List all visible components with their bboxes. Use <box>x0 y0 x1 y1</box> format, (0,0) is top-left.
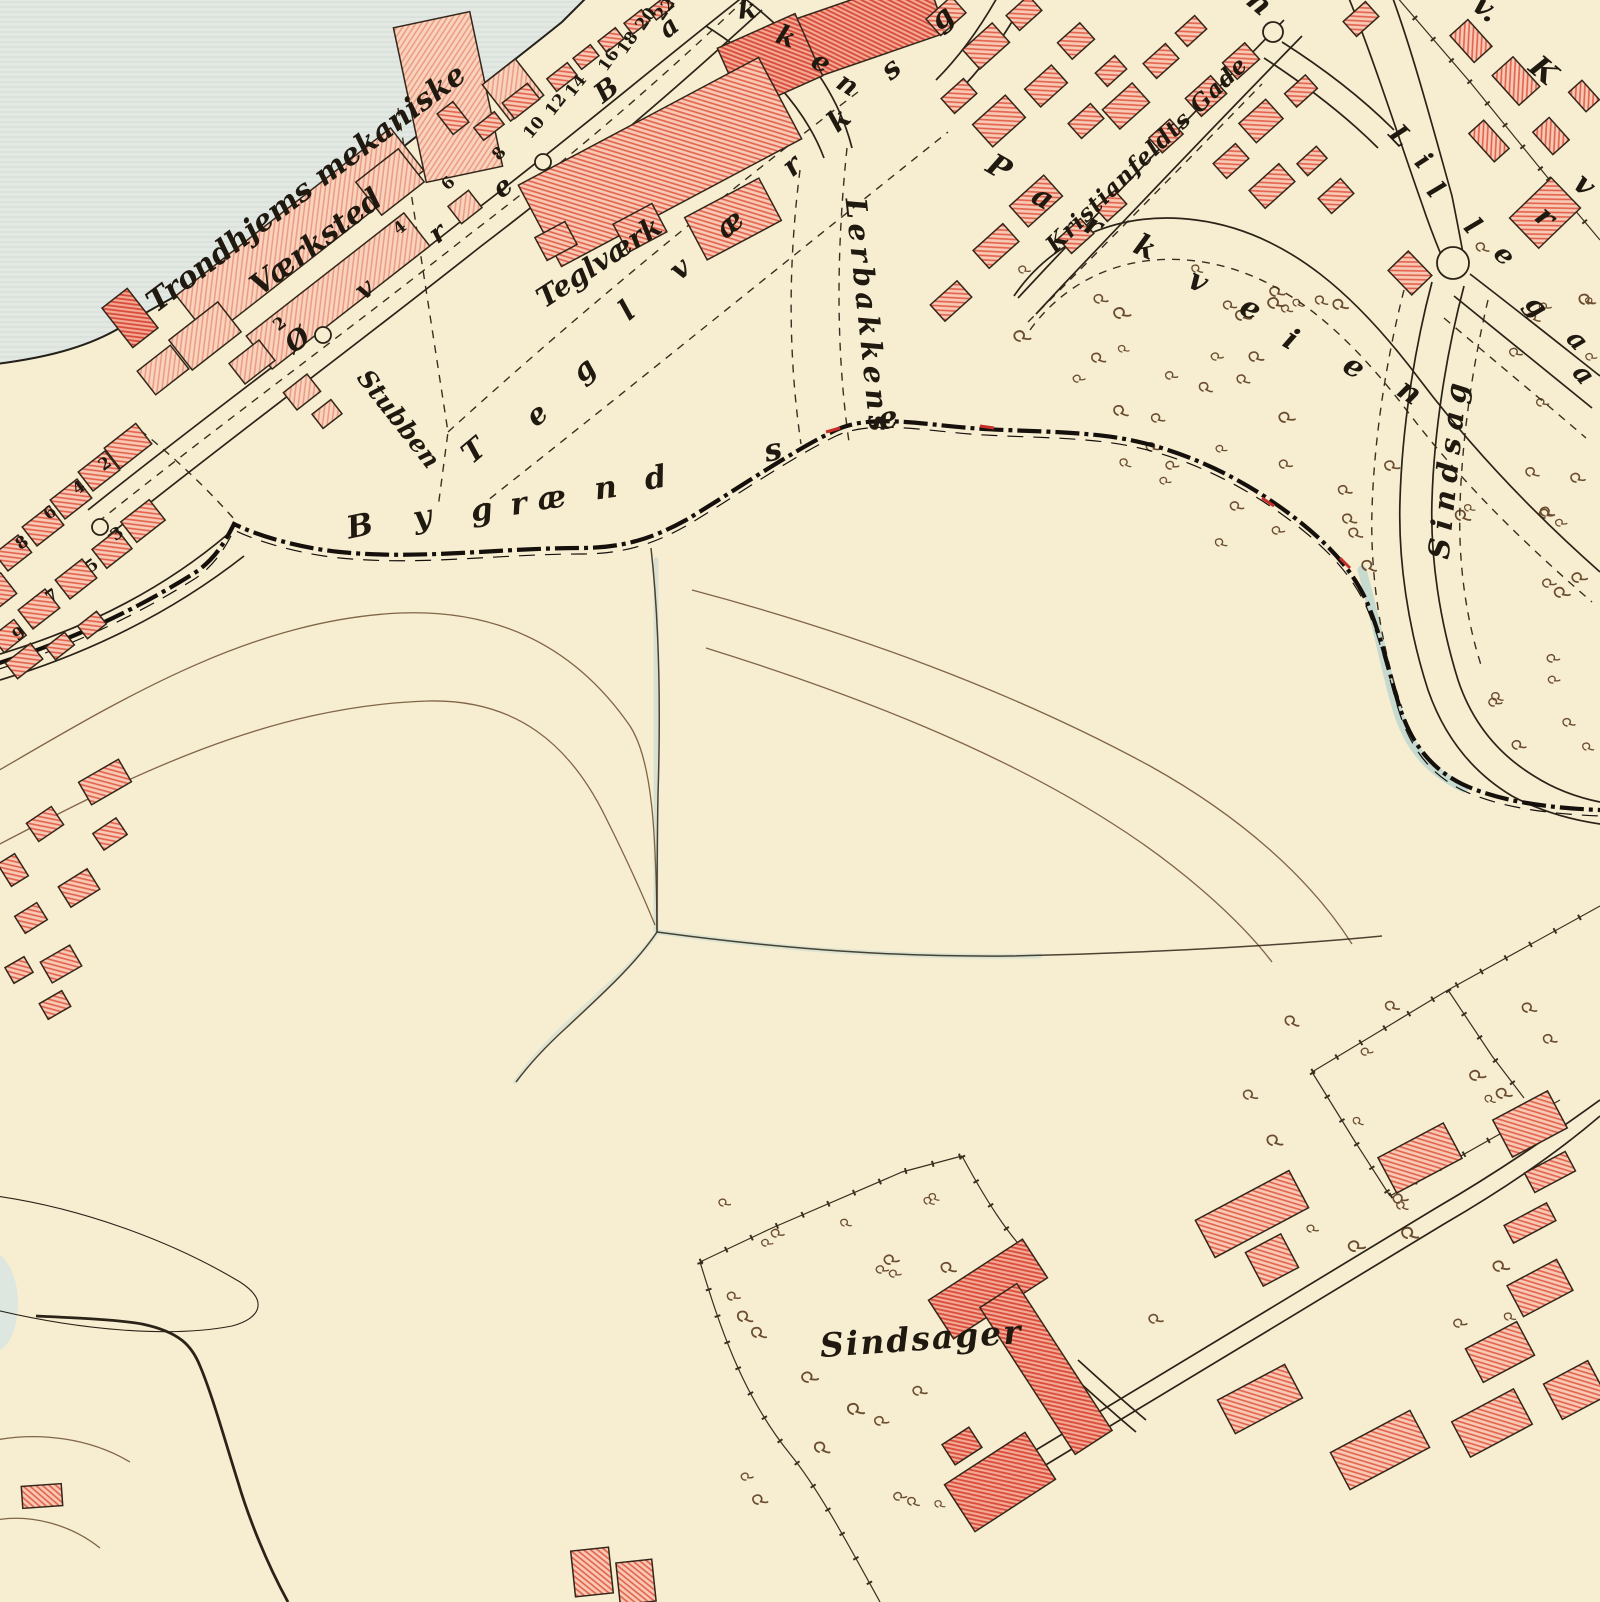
building <box>21 1484 62 1509</box>
street-junction-circle <box>535 154 551 170</box>
building <box>571 1547 614 1597</box>
boundary-red-mark <box>980 426 994 428</box>
street-junction-circle <box>92 519 108 535</box>
street-junction-circle <box>315 327 331 343</box>
street-letter-bygraendse: æ <box>535 478 569 518</box>
historic-map-page: Trondhjems mekaniskeVærkstedTeglværkStub… <box>0 0 1600 1602</box>
building <box>616 1559 656 1602</box>
street-junction-circle <box>1263 22 1283 42</box>
map-canvas: Trondhjems mekaniskeVærkstedTeglværkStub… <box>0 0 1600 1602</box>
street-junction-circle <box>1437 247 1469 279</box>
street-letter-ovre-bakkens-gade: k <box>737 0 758 26</box>
